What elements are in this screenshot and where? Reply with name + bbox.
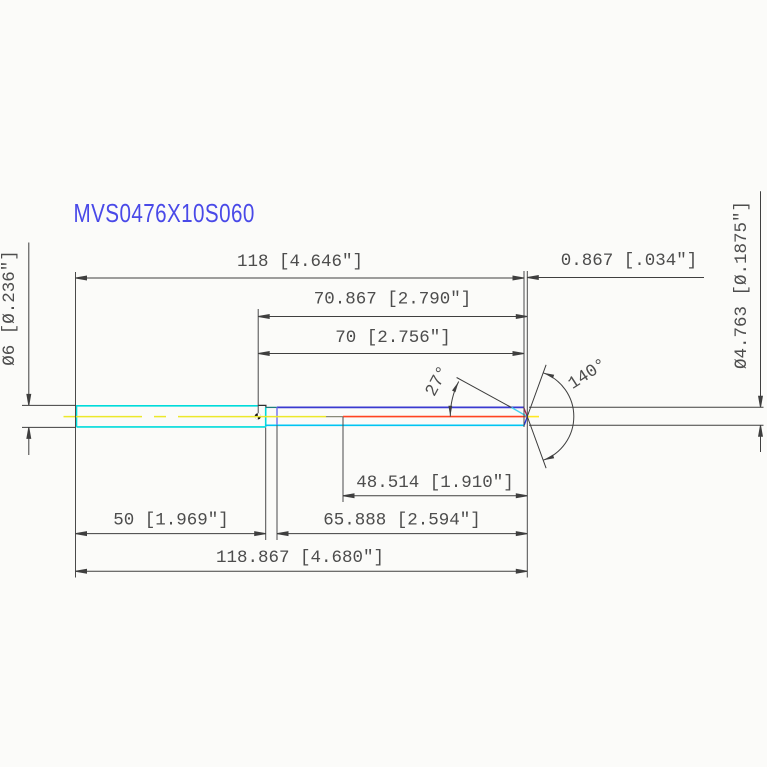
svg-text:118.867 [4.680″]: 118.867 [4.680″] (216, 548, 384, 568)
svg-text:0.867 [.034″]: 0.867 [.034″] (561, 251, 698, 271)
svg-text:65.888 [2.594″]: 65.888 [2.594″] (323, 511, 481, 531)
svg-text:MVS0476X10S060: MVS0476X10S060 (74, 199, 255, 228)
svg-text:48.514 [1.910″]: 48.514 [1.910″] (356, 473, 514, 493)
svg-text:70.867 [2.790″]: 70.867 [2.790″] (314, 290, 472, 310)
svg-text:50 [1.969″]: 50 [1.969″] (113, 511, 229, 531)
svg-text:27°: 27° (422, 363, 454, 400)
svg-text:Ø4.763 [Ø.1875″]: Ø4.763 [Ø.1875″] (732, 201, 752, 369)
svg-text:140°: 140° (565, 355, 611, 395)
svg-text:118 [4.646″]: 118 [4.646″] (237, 252, 363, 272)
svg-text:Ø6 [Ø.236″]: Ø6 [Ø.236″] (0, 250, 20, 366)
svg-text:70 [2.756″]: 70 [2.756″] (335, 328, 451, 348)
